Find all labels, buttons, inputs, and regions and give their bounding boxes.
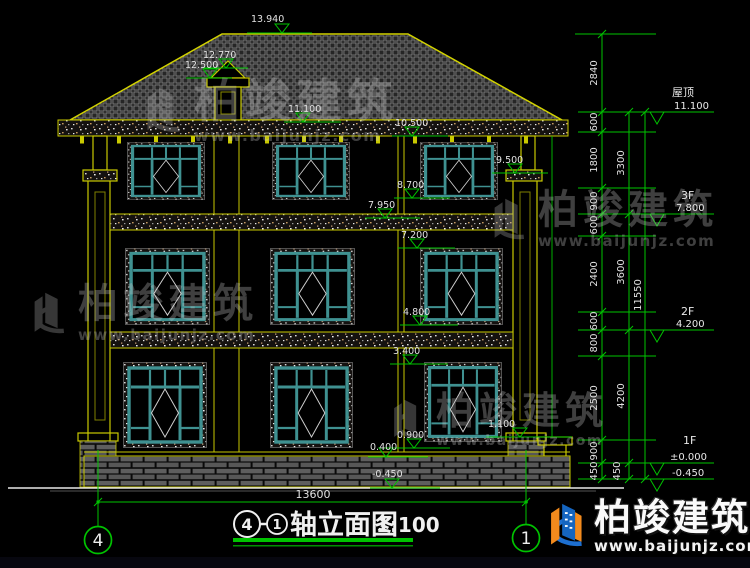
window-3f-left bbox=[127, 142, 204, 199]
title-scale: 1:100 bbox=[376, 513, 440, 537]
svg-text:13.940: 13.940 bbox=[251, 14, 284, 25]
windows-2f bbox=[126, 248, 503, 324]
svg-text:2400: 2400 bbox=[589, 261, 600, 286]
window-3f-right bbox=[420, 142, 497, 199]
cad-drawing-viewport: 13.940 12.770 12.500 11.100 10.500 9.500… bbox=[0, 0, 750, 568]
svg-text:4.800: 4.800 bbox=[403, 307, 430, 318]
svg-text:-0.450: -0.450 bbox=[672, 468, 704, 479]
spot-3.400: 3.400 bbox=[390, 346, 448, 364]
svg-text:2840: 2840 bbox=[589, 60, 600, 85]
window-2f-right bbox=[420, 248, 502, 324]
svg-text:3600: 3600 bbox=[616, 259, 627, 284]
drawing-title: 4 1 轴立面图 1:100 bbox=[233, 509, 440, 547]
svg-text:-0.450: -0.450 bbox=[372, 469, 403, 480]
spot-13.940: 13.940 bbox=[247, 14, 312, 33]
svg-text:2F: 2F bbox=[681, 305, 694, 318]
svg-text:屋顶: 屋顶 bbox=[672, 86, 694, 99]
level-roof: 屋顶11.100 bbox=[645, 86, 714, 124]
svg-text:±0.000: ±0.000 bbox=[670, 452, 707, 463]
svg-text:7.950: 7.950 bbox=[368, 200, 395, 211]
floor-level-markers: 屋顶11.100 3F7.800 2F4.200 1F±0.000 -0.450 bbox=[645, 86, 714, 491]
svg-text:9.500: 9.500 bbox=[496, 155, 523, 166]
svg-text:800: 800 bbox=[589, 333, 600, 352]
svg-text:1: 1 bbox=[521, 529, 532, 549]
svg-text:2500: 2500 bbox=[589, 385, 600, 410]
logo-url: www.baijunjz.com bbox=[594, 539, 750, 554]
windows-3f bbox=[127, 142, 497, 199]
right-pilaster bbox=[506, 136, 546, 487]
overall-width-dim: 13600 bbox=[296, 488, 331, 501]
floor-band-3f bbox=[110, 214, 513, 230]
svg-text:1F: 1F bbox=[683, 434, 696, 447]
window-2f-middle bbox=[271, 248, 355, 324]
svg-text:4.200: 4.200 bbox=[676, 319, 705, 330]
svg-text:3300: 3300 bbox=[616, 150, 627, 175]
right-dimension-text: 2840 600 1800 900 600 2400 600 800 2500 … bbox=[589, 60, 644, 480]
left-pilaster bbox=[78, 136, 118, 487]
title-axis-from: 4 bbox=[241, 515, 252, 534]
svg-text:4200: 4200 bbox=[616, 383, 627, 408]
axis-bubble-1: 1 bbox=[513, 525, 540, 552]
eave-band bbox=[58, 120, 568, 140]
svg-text:1800: 1800 bbox=[589, 147, 600, 172]
svg-text:900: 900 bbox=[589, 441, 600, 460]
svg-text:12.500: 12.500 bbox=[185, 60, 218, 71]
svg-text:3F: 3F bbox=[681, 189, 694, 202]
logo-brand: 柏竣建筑 bbox=[594, 499, 750, 536]
level-2f: 2F4.200 bbox=[645, 305, 714, 342]
floor-band-2f bbox=[110, 332, 513, 348]
title-underline bbox=[233, 538, 413, 542]
brand-logo-icon bbox=[540, 497, 588, 555]
window-3f-middle bbox=[272, 142, 349, 199]
svg-text:3.400: 3.400 bbox=[393, 346, 420, 357]
svg-text:600: 600 bbox=[589, 215, 600, 234]
svg-text:11.100: 11.100 bbox=[674, 101, 709, 112]
svg-text:0.400: 0.400 bbox=[370, 442, 397, 453]
windows-1f bbox=[124, 362, 502, 447]
svg-text:900: 900 bbox=[589, 191, 600, 210]
window-1f-middle bbox=[270, 363, 352, 448]
svg-text:11550: 11550 bbox=[633, 279, 644, 311]
svg-text:8.700: 8.700 bbox=[397, 180, 424, 191]
svg-text:4: 4 bbox=[93, 531, 104, 551]
elevation-drawing: 13.940 12.770 12.500 11.100 10.500 9.500… bbox=[0, 0, 750, 568]
plinth bbox=[84, 452, 570, 487]
window-2f-left bbox=[126, 248, 210, 324]
svg-text:450: 450 bbox=[612, 461, 623, 480]
svg-text:10.500: 10.500 bbox=[395, 118, 428, 129]
spot-7.200: 7.200 bbox=[398, 230, 455, 248]
svg-text:0.900: 0.900 bbox=[397, 430, 424, 441]
svg-text:1.100: 1.100 bbox=[488, 419, 515, 430]
right-dimension-block bbox=[575, 30, 656, 483]
axis-bubble-4: 4 bbox=[85, 527, 112, 554]
svg-text:450: 450 bbox=[589, 461, 600, 480]
svg-text:11.100: 11.100 bbox=[288, 104, 321, 115]
svg-text:7.800: 7.800 bbox=[676, 203, 705, 214]
brand-logo: 柏竣建筑 www.baijunjz.com bbox=[540, 497, 750, 555]
level-3f: 3F7.800 bbox=[645, 189, 714, 226]
title-axis-to: 1 bbox=[272, 518, 281, 533]
window-1f-left bbox=[124, 363, 207, 448]
svg-text:600: 600 bbox=[589, 311, 600, 330]
footer-strip bbox=[0, 557, 750, 568]
svg-text:600: 600 bbox=[589, 112, 600, 131]
svg-text:7.200: 7.200 bbox=[401, 230, 428, 241]
